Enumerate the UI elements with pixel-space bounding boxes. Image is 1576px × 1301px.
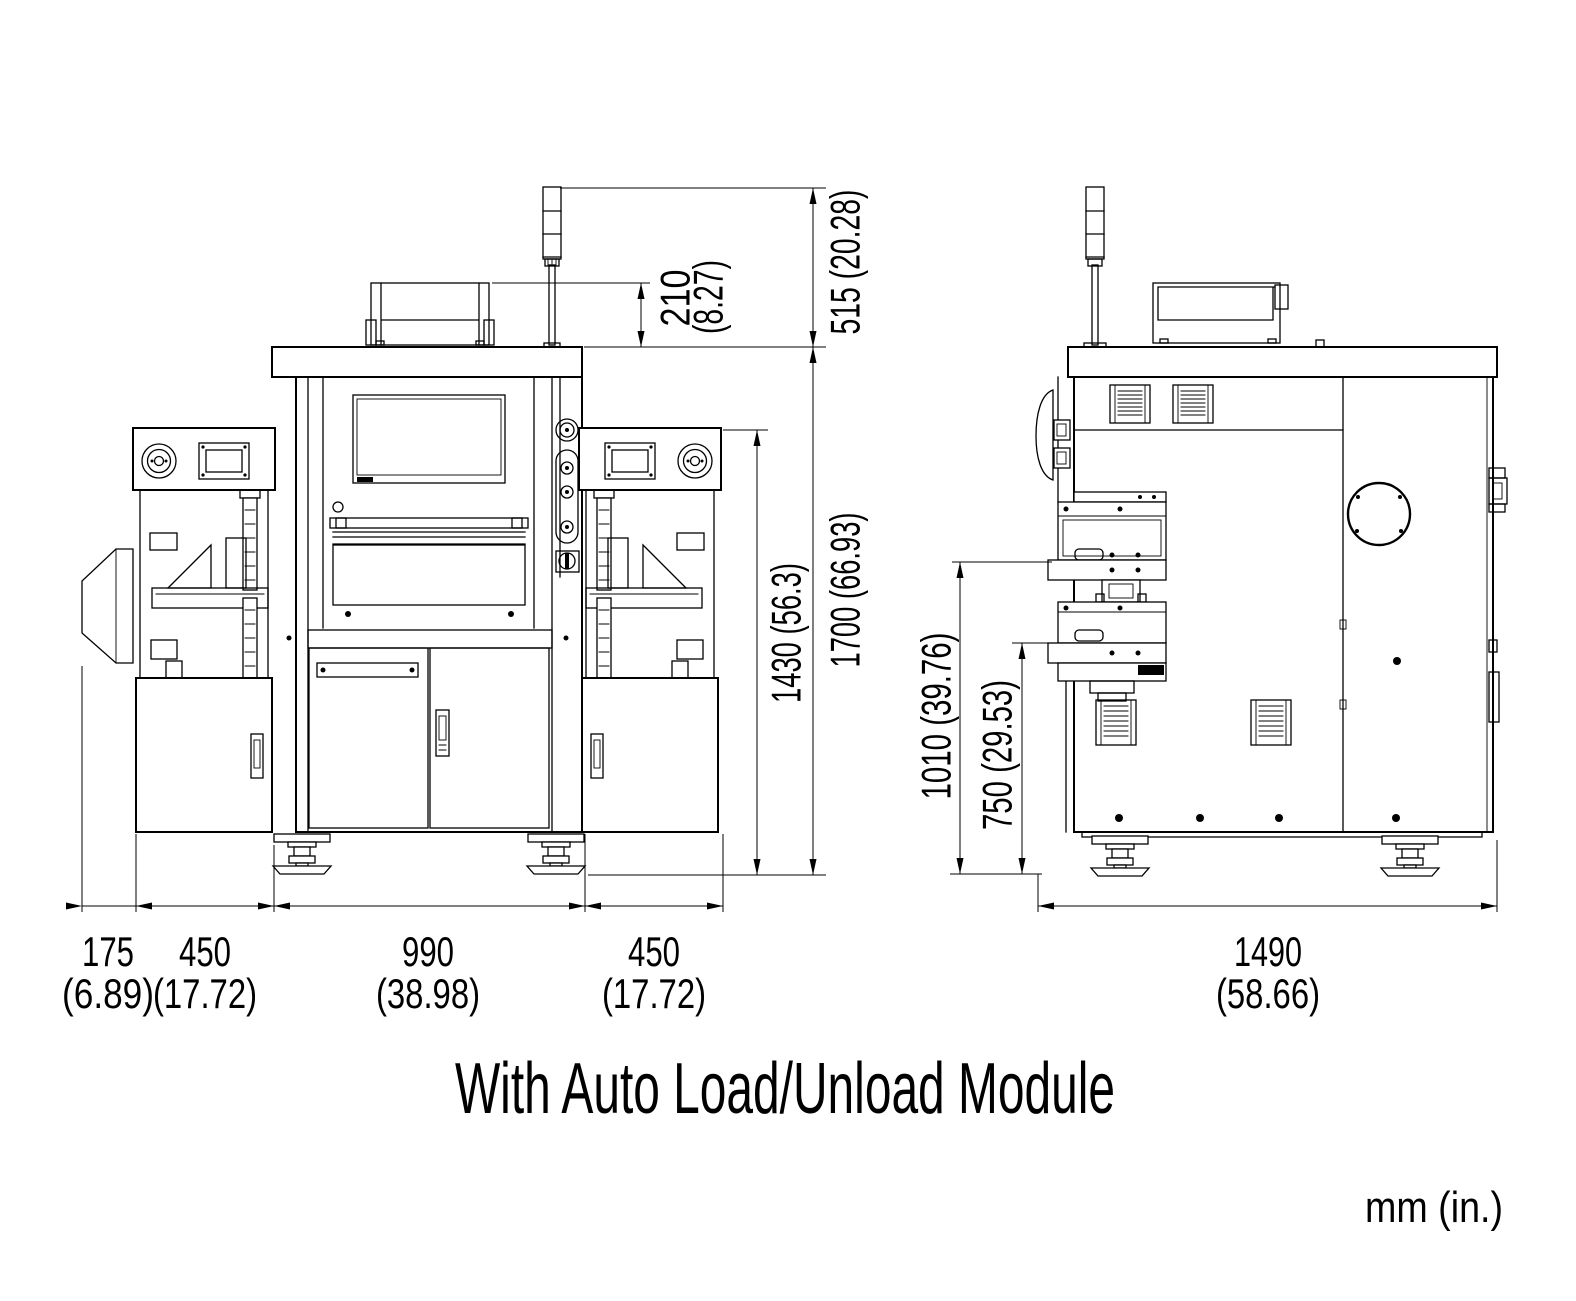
dim-1490-mm: 1490 — [1234, 928, 1302, 975]
drawing-svg: 210 (8.27) 515 (20.28) 1700 (66.93) 1430… — [0, 0, 1576, 1301]
left-door — [309, 648, 428, 828]
dim-515: 515 (20.28) — [822, 190, 869, 335]
fan-cutout — [1348, 483, 1410, 545]
dim-1430: 1430 (56.3) — [763, 563, 810, 703]
dim-990-in: (38.98) — [376, 970, 480, 1017]
button-group — [556, 450, 578, 543]
stage-clamp — [1096, 580, 1146, 602]
units-note: mm (in.) — [1365, 1183, 1503, 1232]
dim-175-mm: 175 — [82, 928, 134, 975]
side-dimensions: 1010 (39.76) 750 (29.53) 1490 (58.66) — [913, 562, 1497, 1017]
dim-1700: 1700 (66.93) — [822, 513, 869, 668]
dim-450R-mm: 450 — [628, 928, 680, 975]
dim-750: 750 (29.53) — [974, 680, 1021, 830]
cabinet-doors — [308, 630, 552, 828]
lower-stage — [1048, 602, 1166, 663]
door-handle — [436, 710, 449, 756]
dimension-drawing: 210 (8.27) 515 (20.28) 1700 (66.93) 1430… — [0, 0, 1576, 1301]
signal-tower-icon — [543, 187, 561, 347]
signal-tower-icon — [1084, 187, 1106, 347]
top-box — [1153, 283, 1288, 343]
dim-450R-in: (17.72) — [602, 970, 706, 1017]
dim-450L-mm: 450 — [179, 928, 231, 975]
left-load-module — [133, 428, 275, 832]
front-dimensions: 210 (8.27) 515 (20.28) 1700 (66.93) 1430… — [62, 188, 869, 1017]
front-view — [82, 187, 721, 874]
dim-450L-in: (17.72) — [153, 970, 257, 1017]
input-chute — [82, 549, 133, 663]
rear-latch — [1489, 468, 1507, 722]
main-cabinet — [272, 347, 582, 832]
dim-1490-in: (58.66) — [1216, 970, 1320, 1017]
side-flap — [1036, 390, 1053, 480]
load-stage-stack — [1036, 390, 1166, 701]
side-view — [1036, 187, 1507, 876]
viewing-window — [333, 395, 505, 512]
door-handle — [317, 663, 418, 677]
dim-990-mm: 990 — [402, 928, 454, 975]
dim-210-in: (8.27) — [685, 260, 732, 334]
right-unload-module — [579, 428, 721, 832]
upper-stage — [1048, 502, 1166, 580]
conveyor-slot — [330, 518, 528, 617]
dim-1010: 1010 (39.76) — [913, 633, 960, 800]
right-door — [430, 648, 549, 828]
top-box — [366, 283, 494, 345]
dim-175-in: (6.89) — [62, 970, 154, 1017]
drawing-caption: With Auto Load/Unload Module — [455, 1049, 1115, 1129]
